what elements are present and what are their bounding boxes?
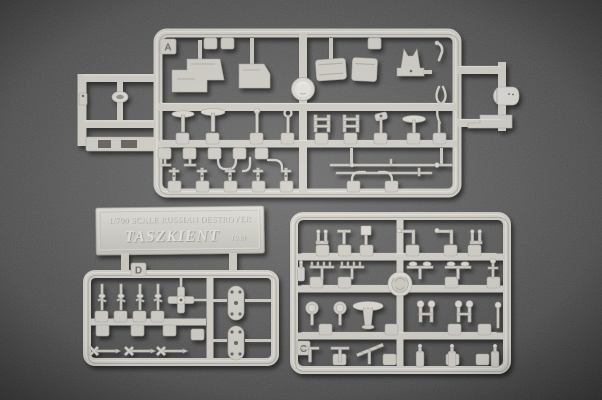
photo-vignette: [0, 0, 602, 400]
kit-photo-canvas: A: [0, 0, 602, 400]
kit-photograph: A: [0, 0, 602, 400]
